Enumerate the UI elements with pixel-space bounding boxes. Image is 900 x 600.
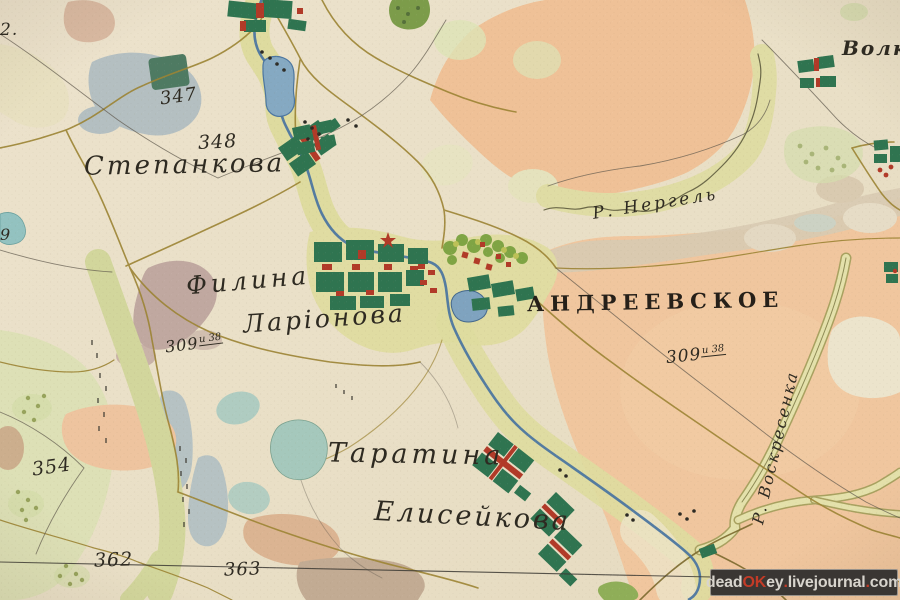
label-number-347: 347	[159, 85, 199, 108]
historical-map-image: Степанкова Филина Ларіонова АНДРЕЕВСКОЕ …	[0, 0, 900, 600]
watermark-badge: deadOKey.livejournal.com	[710, 569, 898, 596]
label-number-edge-top: 2.	[0, 22, 18, 39]
label-number-348: 348	[198, 132, 238, 153]
label-number-354: 354	[31, 455, 73, 479]
label-number-362: 362	[94, 550, 134, 570]
label-number-edge-mid: 9	[0, 227, 11, 243]
watermark-text: dead	[706, 574, 743, 592]
label-taratina: Таратина	[328, 439, 505, 469]
label-stepankova: Степанкова	[84, 150, 286, 180]
label-volk-partial: Волк	[842, 38, 900, 58]
label-number-363: 363	[224, 560, 262, 579]
label-andreevskoye: АНДРЕЕВСКОЕ	[527, 289, 785, 314]
